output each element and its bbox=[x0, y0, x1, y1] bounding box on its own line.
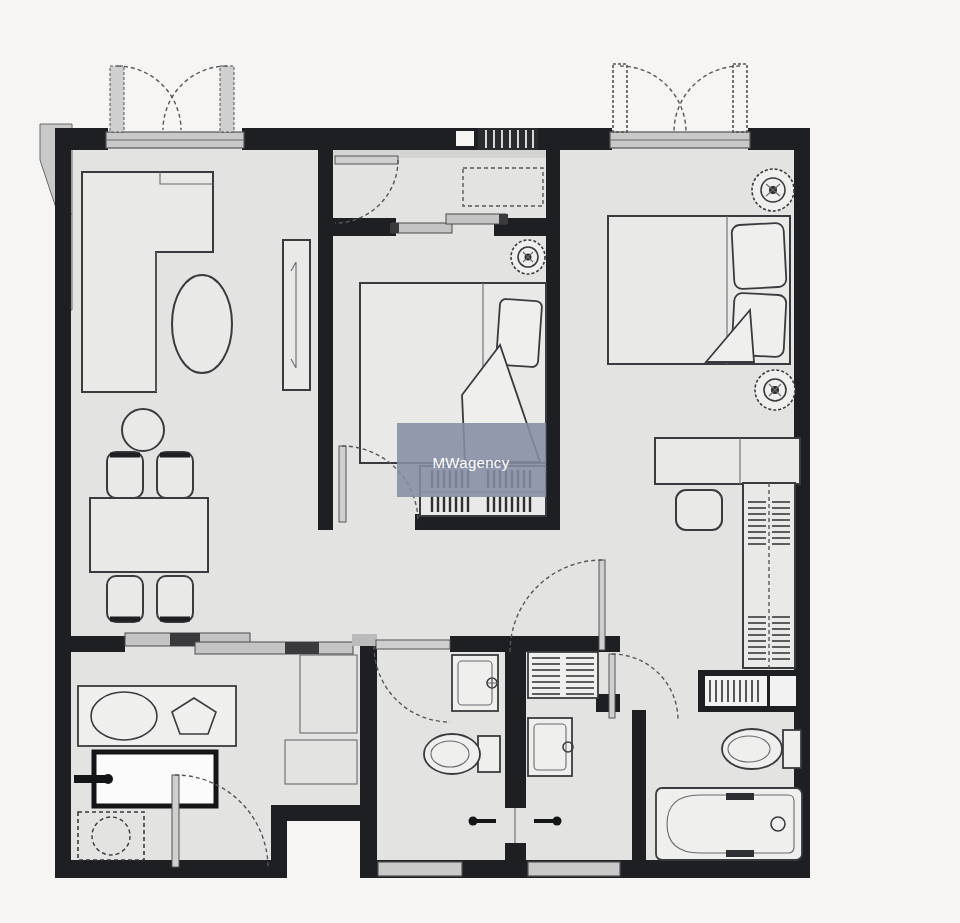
dining-chair bbox=[157, 576, 193, 622]
plant bbox=[122, 409, 164, 451]
watermark-text: MWagency bbox=[433, 454, 510, 471]
bathroom-window bbox=[528, 862, 620, 876]
desk-chair bbox=[676, 490, 722, 530]
watermark: MWagency bbox=[397, 423, 546, 497]
grab-bar bbox=[726, 793, 754, 800]
linen-closet bbox=[528, 652, 598, 698]
dining-chair bbox=[107, 576, 143, 622]
pillow bbox=[731, 223, 786, 290]
bathroom-a-door bbox=[376, 640, 450, 649]
bedroom-1-door bbox=[599, 560, 605, 650]
bedroom-2-sliding-door bbox=[392, 223, 452, 233]
desk bbox=[655, 438, 800, 484]
downlight-icon bbox=[752, 169, 794, 211]
dining-chair bbox=[157, 452, 193, 498]
entrance-notch bbox=[287, 821, 360, 923]
bathroom-window bbox=[378, 862, 462, 876]
bathroom-c-door bbox=[609, 654, 615, 718]
toilet-tank bbox=[783, 730, 801, 768]
downlight-icon bbox=[511, 240, 545, 274]
floor-plan: MWagency bbox=[0, 0, 960, 923]
hallway-door bbox=[335, 156, 398, 164]
downlight-icon bbox=[755, 370, 795, 410]
toilet bbox=[424, 734, 480, 774]
toilet bbox=[722, 729, 782, 769]
bedroom-2-door bbox=[339, 446, 346, 522]
toilet-tank bbox=[478, 736, 500, 772]
grab-bar bbox=[726, 850, 754, 857]
oven-handle bbox=[74, 775, 108, 783]
dining-table bbox=[90, 498, 208, 572]
coffee-table bbox=[172, 275, 232, 373]
wall-cap bbox=[352, 634, 377, 646]
dining-chair bbox=[107, 452, 143, 498]
